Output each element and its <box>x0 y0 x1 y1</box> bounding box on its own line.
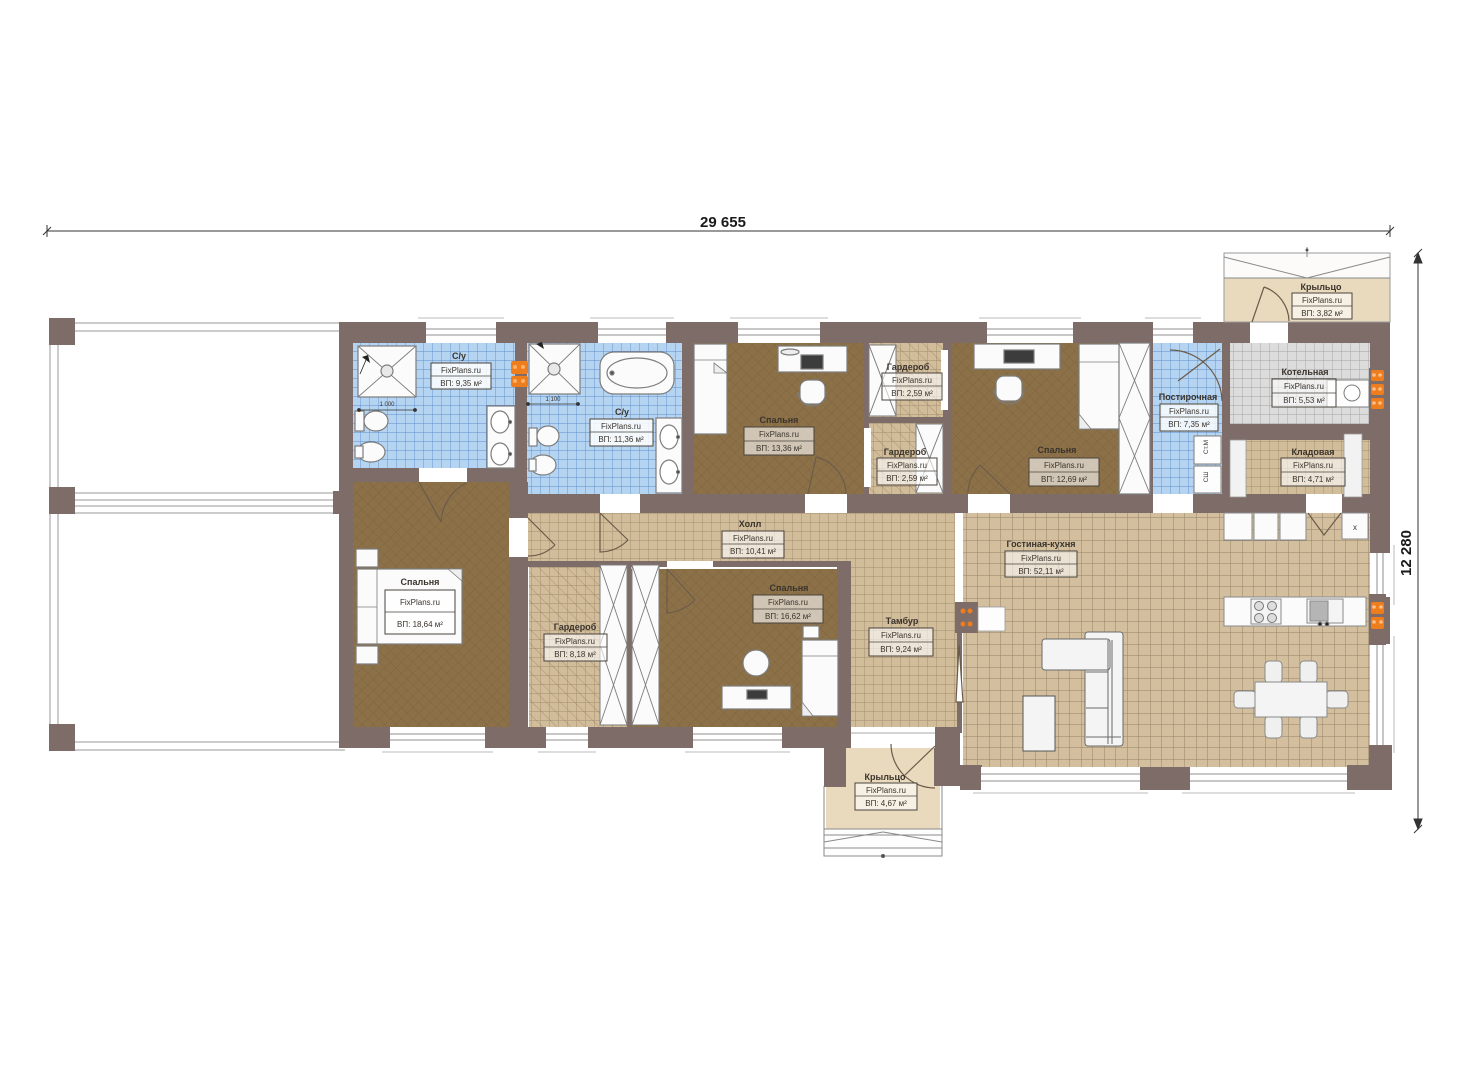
svg-text:ВП: 2,59 м²: ВП: 2,59 м² <box>891 389 933 398</box>
svg-text:ВП: 18,64 м²: ВП: 18,64 м² <box>397 620 443 629</box>
svg-text:ВП: 5,53 м²: ВП: 5,53 м² <box>1283 396 1325 405</box>
svg-text:Гардероб: Гардероб <box>554 622 597 632</box>
svg-text:Гостиная-кухня: Гостиная-кухня <box>1007 539 1076 549</box>
svg-text:ВП: 7,35 м²: ВП: 7,35 м² <box>1168 420 1210 429</box>
svg-text:Спальня: Спальня <box>760 415 799 425</box>
svg-text:Крыльцо: Крыльцо <box>1301 282 1342 292</box>
svg-text:FixPlans.ru: FixPlans.ru <box>887 461 927 470</box>
svg-text:FixPlans.ru: FixPlans.ru <box>1293 461 1333 470</box>
svg-text:Тамбур: Тамбур <box>886 616 919 626</box>
svg-text:FixPlans.ru: FixPlans.ru <box>1284 382 1324 391</box>
svg-text:х: х <box>1353 523 1357 532</box>
svg-text:FixPlans.ru: FixPlans.ru <box>881 631 921 640</box>
svg-text:ВП: 52,11 м²: ВП: 52,11 м² <box>1018 567 1064 576</box>
svg-text:ВП: 12,69 м²: ВП: 12,69 м² <box>1041 475 1087 484</box>
svg-text:Спальня: Спальня <box>770 583 809 593</box>
svg-text:1 100: 1 100 <box>545 397 561 403</box>
svg-text:FixPlans.ru: FixPlans.ru <box>601 422 641 431</box>
svg-text:12 280: 12 280 <box>1398 530 1415 576</box>
svg-text:ВП: 13,36 м²: ВП: 13,36 м² <box>756 444 802 453</box>
svg-text:FixPlans.ru: FixPlans.ru <box>1044 461 1084 470</box>
svg-text:FixPlans.ru: FixPlans.ru <box>892 376 932 385</box>
svg-text:ВП: 11,36 м²: ВП: 11,36 м² <box>598 435 644 444</box>
svg-text:Холл: Холл <box>739 519 762 529</box>
svg-text:FixPlans.ru: FixPlans.ru <box>1302 296 1342 305</box>
svg-text:С/у: С/у <box>452 351 466 361</box>
svg-text:Кладовая: Кладовая <box>1291 447 1334 457</box>
svg-text:ВП: 4,71 м²: ВП: 4,71 м² <box>1292 475 1334 484</box>
svg-text:ВП: 3,82 м²: ВП: 3,82 м² <box>1301 309 1343 318</box>
svg-text:FixPlans.ru: FixPlans.ru <box>441 366 481 375</box>
svg-text:FixPlans.ru: FixPlans.ru <box>759 430 799 439</box>
svg-text:FixPlans.ru: FixPlans.ru <box>866 786 906 795</box>
svg-text:Спальня: Спальня <box>1038 445 1077 455</box>
svg-text:FixPlans.ru: FixPlans.ru <box>768 598 808 607</box>
svg-text:Ст.М: Ст.М <box>1203 440 1210 454</box>
svg-text:ВП: 2,59 м²: ВП: 2,59 м² <box>886 474 928 483</box>
svg-text:FixPlans.ru: FixPlans.ru <box>1021 554 1061 563</box>
svg-text:ВП: 9,35 м²: ВП: 9,35 м² <box>440 379 482 388</box>
svg-text:29 655: 29 655 <box>700 214 746 231</box>
svg-text:FixPlans.ru: FixPlans.ru <box>400 598 440 607</box>
svg-text:FixPlans.ru: FixPlans.ru <box>1169 407 1209 416</box>
svg-text:FixPlans.ru: FixPlans.ru <box>733 534 773 543</box>
svg-text:Спальня: Спальня <box>401 577 440 587</box>
svg-text:Гардероб: Гардероб <box>884 447 927 457</box>
svg-text:FixPlans.ru: FixPlans.ru <box>555 637 595 646</box>
svg-text:СШ: СШ <box>1203 472 1210 483</box>
svg-text:ВП: 8,18 м²: ВП: 8,18 м² <box>554 650 596 659</box>
svg-text:С/у: С/у <box>615 407 629 417</box>
svg-text:1 000: 1 000 <box>379 402 395 408</box>
svg-text:ВП: 10,41 м²: ВП: 10,41 м² <box>730 547 776 556</box>
svg-text:Гардероб: Гардероб <box>887 362 930 372</box>
svg-text:Крыльцо: Крыльцо <box>865 772 906 782</box>
svg-text:Постирочная: Постирочная <box>1159 392 1217 402</box>
svg-text:Котельная: Котельная <box>1281 367 1328 377</box>
svg-text:ВП: 16,62 м²: ВП: 16,62 м² <box>765 612 811 621</box>
svg-text:ВП: 4,67 м²: ВП: 4,67 м² <box>865 799 907 808</box>
svg-text:ВП: 9,24 м²: ВП: 9,24 м² <box>880 645 922 654</box>
